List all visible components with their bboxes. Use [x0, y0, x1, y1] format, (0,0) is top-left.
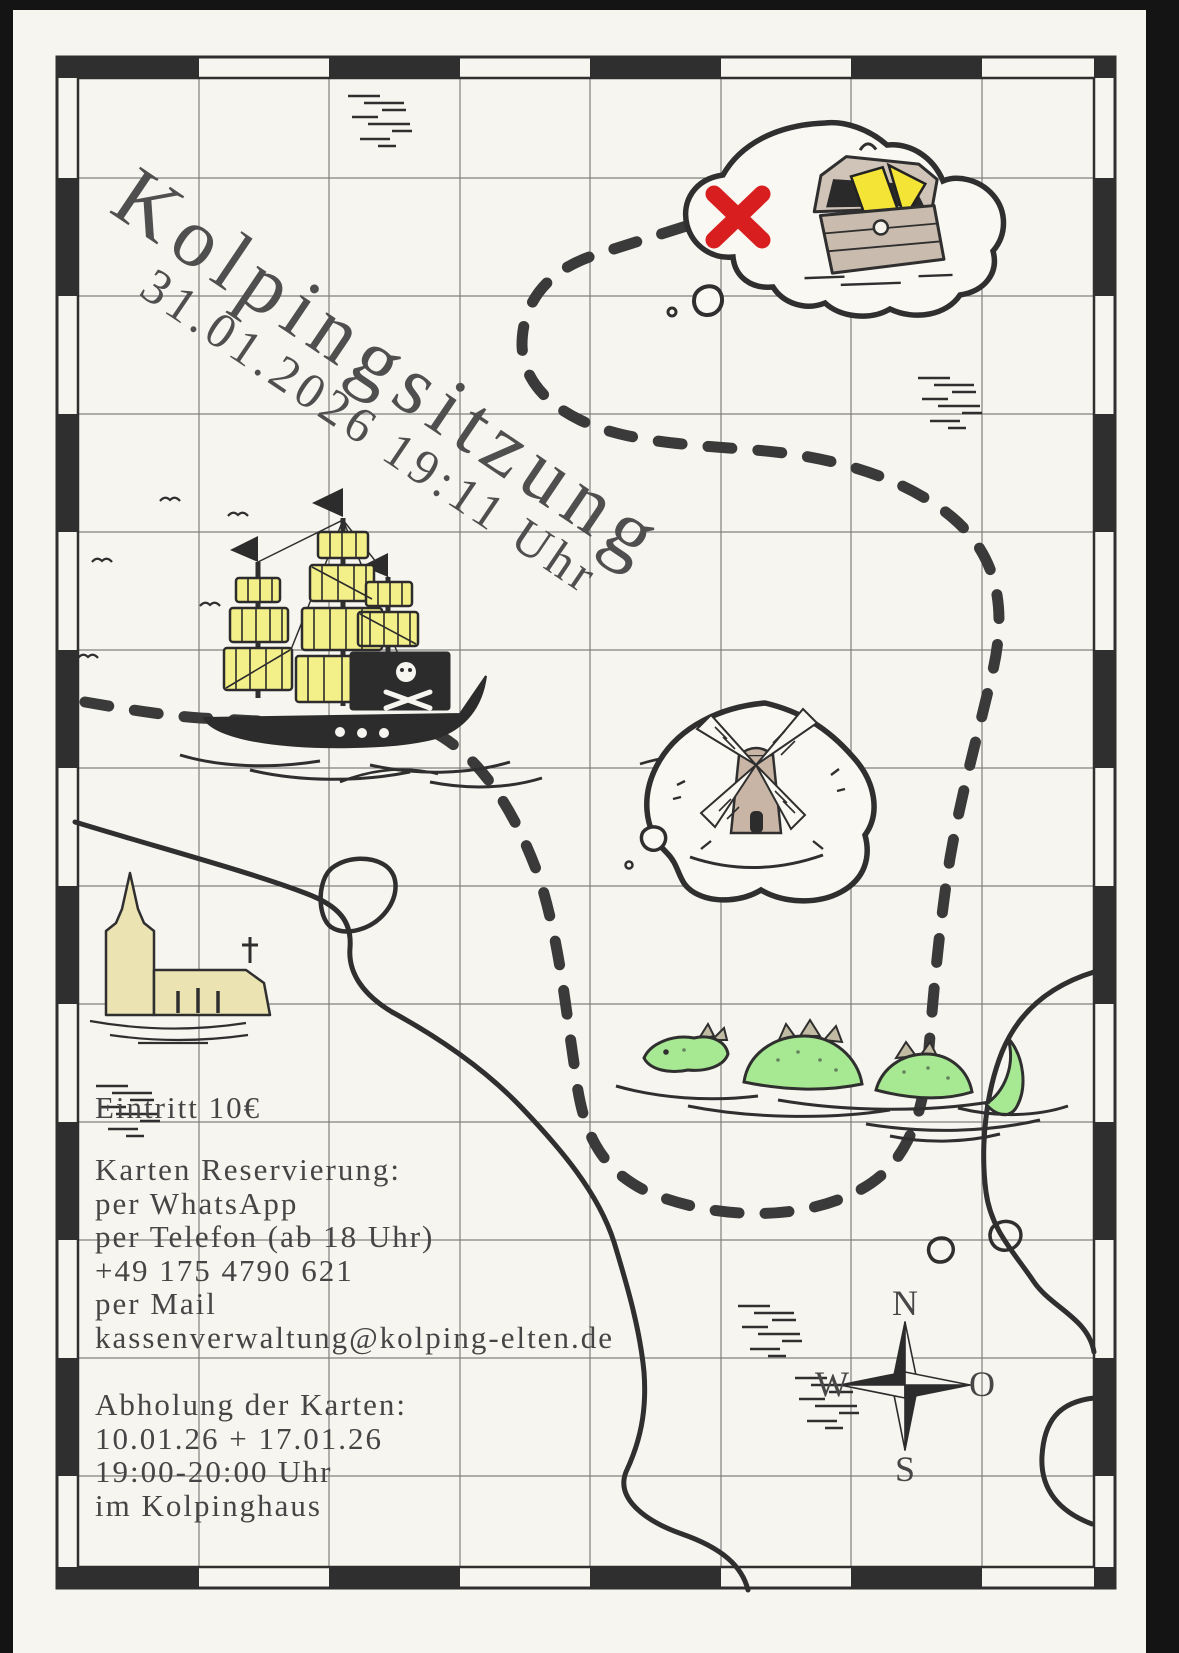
compass-rose-icon	[840, 1322, 970, 1450]
reservation-line-telefon: per Telefon (ab 18 Uhr)	[95, 1220, 614, 1254]
reservation-line-phone-number: +49 175 4790 621	[95, 1254, 614, 1288]
compass-label-east: O	[969, 1363, 995, 1405]
pickup-line-location: im Kolpinghaus	[95, 1489, 407, 1523]
bird-icons	[78, 498, 248, 658]
pickup-line-time: 19:00-20:00 Uhr	[95, 1455, 407, 1489]
sea-serpent-icon	[616, 1020, 1068, 1141]
windmill-island	[626, 703, 875, 901]
pickup-line-dates: 10.01.26 + 17.01.26	[95, 1422, 407, 1456]
compass-label-south: S	[895, 1448, 915, 1490]
compass-label-north: N	[892, 1282, 918, 1324]
church-icon	[90, 873, 270, 1043]
reservation-block: Karten Reservierung: per WhatsApp per Te…	[95, 1153, 614, 1354]
reservation-line-email-address: kassenverwaltung@kolping-elten.de	[95, 1321, 614, 1355]
pickup-heading: Abholung der Karten:	[95, 1388, 407, 1422]
treasure-map-flyer: Kolpingsitzung 31.01.2026 19:11 Uhr Eint…	[0, 0, 1179, 1653]
compass-label-west: W	[815, 1363, 849, 1405]
reservation-line-whatsapp: per WhatsApp	[95, 1187, 614, 1221]
pickup-block: Abholung der Karten: 10.01.26 + 17.01.26…	[95, 1388, 407, 1522]
admission-text: Eintritt 10€	[95, 1090, 261, 1126]
reservation-line-mail: per Mail	[95, 1287, 614, 1321]
reservation-heading: Karten Reservierung:	[95, 1153, 614, 1187]
